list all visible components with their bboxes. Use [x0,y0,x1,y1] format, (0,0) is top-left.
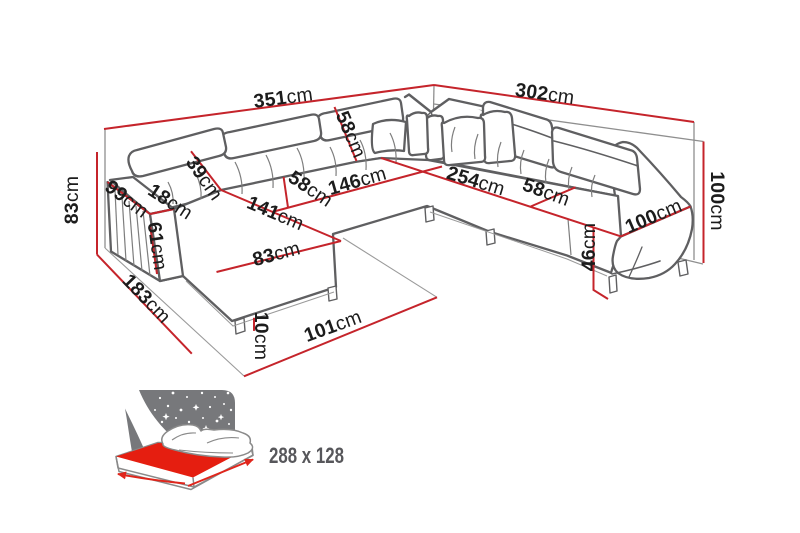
svg-text:288 x 128: 288 x 128 [269,443,344,468]
svg-text:83cm: 83cm [61,176,83,225]
svg-text:10cm: 10cm [250,312,272,361]
svg-text:100cm: 100cm [706,171,728,231]
svg-text:46cm: 46cm [578,223,600,272]
svg-text:302cm: 302cm [514,79,576,109]
svg-text:351cm: 351cm [252,83,314,113]
